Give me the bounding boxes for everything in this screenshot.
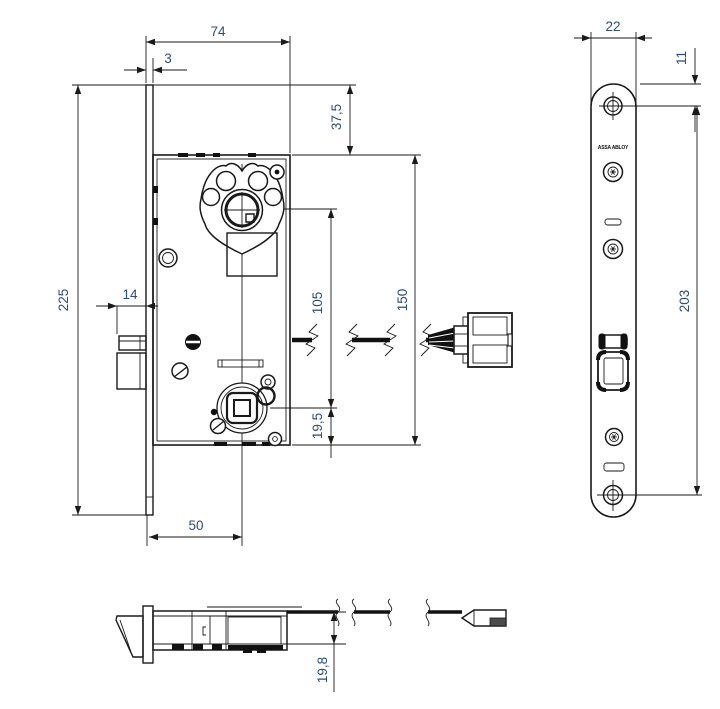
front-details <box>159 233 277 379</box>
bracket-mark <box>203 627 206 635</box>
cylinder-hole <box>200 164 284 254</box>
connector-plug-bottom <box>462 610 506 626</box>
case-width-dimension: 74 <box>146 24 290 45</box>
faceplate-front <box>146 85 153 515</box>
case-width-label: 74 <box>210 24 226 39</box>
connector-plug-front <box>428 313 512 367</box>
drawing-canvas: 74 3 37,5 225 14 <box>0 0 720 709</box>
case-top-offset-dimension: 37,5 <box>329 85 353 155</box>
brand-logo: ASSA ABLOY <box>598 145 629 151</box>
cylinder-screw-hole <box>203 189 220 206</box>
faceplate-thickness-dimension: 3 <box>124 51 187 73</box>
case-depth-label: 19,8 <box>315 657 330 683</box>
faceplate-height-label: 225 <box>56 289 71 312</box>
faceplate-edge <box>143 606 153 663</box>
backset-dimension: 50 <box>149 518 242 540</box>
spindle-follower <box>211 375 282 446</box>
case-top-offset-label: 37,5 <box>329 104 344 130</box>
cylinder-screw-hole <box>249 172 268 191</box>
slot-bar <box>218 360 263 367</box>
faceplate-thickness-label: 3 <box>164 51 172 66</box>
bottom-view: 19,8 <box>116 599 506 692</box>
follower-to-bottom-dimension: 19,5 <box>310 408 334 458</box>
backset-label: 50 <box>188 518 203 533</box>
cylinder-to-follower-label: 105 <box>310 292 325 315</box>
case-height-label: 150 <box>395 289 410 312</box>
latch-bolt-front <box>117 336 146 389</box>
top-to-screw-label: 11 <box>674 51 689 65</box>
housing-block <box>228 617 281 644</box>
faceplate-width-label: 22 <box>605 19 620 34</box>
lock-case-front <box>146 85 290 515</box>
latch-bevel <box>116 616 143 657</box>
spindle-square-hole <box>234 400 250 416</box>
lock-dimensional-drawing: 74 3 37,5 225 14 <box>0 0 720 709</box>
deadlatch-pin <box>119 336 146 350</box>
case-screw <box>269 433 282 446</box>
cylinder-to-follower-dimension: 105 <box>310 209 334 408</box>
case-depth-dimension: 19,8 <box>287 612 346 692</box>
cylinder-screw-hole <box>217 172 236 191</box>
front-view: 74 3 37,5 225 14 <box>56 24 512 546</box>
cylinder-screw-hole <box>265 189 282 206</box>
faceplate-latch-opening <box>598 334 628 391</box>
follower-to-bottom-label: 19,5 <box>310 413 325 439</box>
screw-spacing-label: 203 <box>677 290 692 313</box>
fixing-hole <box>159 249 177 267</box>
latch-protrusion-dimension: 14 <box>96 287 158 309</box>
latch-protrusion-label: 14 <box>122 287 138 302</box>
main-latch <box>117 353 146 389</box>
cable-bottom <box>287 599 462 626</box>
case-height-dimension: 150 <box>395 155 418 445</box>
faceplate-height-dimension: 225 <box>56 85 81 515</box>
faceplate-view: 22 11 203 ASSA ABLOY <box>574 19 702 517</box>
